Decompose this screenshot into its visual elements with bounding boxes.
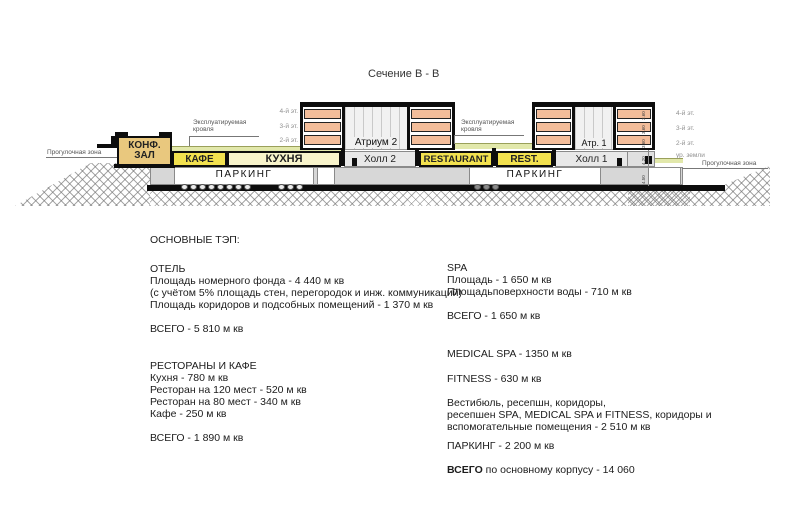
tep-line: вспомогательные помещения - 2 510 м кв xyxy=(447,421,712,433)
tep-total: ВСЕГО - 1 650 м кв xyxy=(447,310,712,322)
dim-4-50: 4.50 xyxy=(641,167,646,184)
floor-slab xyxy=(536,109,571,119)
floor-label-2: 2-й эт. xyxy=(258,137,298,144)
ground-hatch-left xyxy=(15,163,150,206)
tower-left-wing xyxy=(532,107,575,150)
car-dot xyxy=(296,184,303,190)
floor-slab xyxy=(411,135,451,145)
roof-leader-left-h xyxy=(189,136,259,137)
tep-grand-total-bold: ВСЕГО xyxy=(447,464,483,476)
tep-line: Ресторан на 120 мест - 520 м кв xyxy=(150,384,462,396)
tep-line: Площадь - 1 650 м кв xyxy=(447,274,712,286)
hall2-label: Холл 2 xyxy=(364,154,396,165)
roof-callout-right: Эксплуатируемая кровля xyxy=(461,119,519,133)
tep-grand-total-rest: по основному корпусу - 14 060 xyxy=(483,464,635,476)
floor-label-3-right: 3-й эт. xyxy=(676,125,694,132)
tep-line: Кафе - 250 м кв xyxy=(150,408,462,420)
restaurant-label: RESTAURANT xyxy=(424,154,489,165)
tower-atrium-1: Атр. 1 xyxy=(532,102,655,150)
car-dot xyxy=(492,184,499,190)
parking-cars-row xyxy=(278,177,305,195)
tep-parking: ПАРКИНГ - 2 200 м кв xyxy=(447,440,712,452)
car-dot xyxy=(483,184,490,190)
car-dot xyxy=(278,184,285,190)
cafe-label: КАФЕ xyxy=(185,154,213,165)
parapet-right xyxy=(159,132,172,138)
tep-section-title: ОТЕЛЬ xyxy=(150,263,462,275)
dim-3-60-a: 3.60 xyxy=(641,106,646,120)
architectural-section-sheet: Сечение В - В ПАРКИНГ ПАРКИНГ Прогулочна… xyxy=(0,0,800,505)
dim-3-60-c: 3.60 xyxy=(641,134,646,148)
car-dot xyxy=(235,184,242,190)
roof-leader-left-v xyxy=(189,136,190,146)
car-dot xyxy=(199,184,206,190)
car-dot xyxy=(208,184,215,190)
tep-misc-block: Вестибюль, ресепшн, коридоры, ресепшен S… xyxy=(447,397,712,433)
car-dot xyxy=(181,184,188,190)
parking-level-band: ПАРКИНГ ПАРКИНГ xyxy=(150,167,683,185)
cafe-room: КАФЕ xyxy=(172,151,227,167)
tep-grand-total: ВСЕГО по основному корпусу - 14 060 xyxy=(447,464,712,476)
kitchen-room: КУХНЯ xyxy=(227,151,341,167)
roof-leader-right-h xyxy=(454,135,524,136)
car-dot xyxy=(244,184,251,190)
parapet-left xyxy=(115,132,128,138)
parking-ramp xyxy=(317,168,335,184)
tep-line: Вестибюль, ресепшн, коридоры, xyxy=(447,397,712,409)
floor-slab xyxy=(411,122,451,132)
parking-hall-right: ПАРКИНГ xyxy=(469,168,601,184)
tep-left-column: ОСНОВНЫЕ ТЭП: ОТЕЛЬ Площадь номерного фо… xyxy=(150,234,462,444)
hall1-label: Холл 1 xyxy=(576,154,608,165)
parking-hall-left: ПАРКИНГ xyxy=(174,168,314,184)
floor-label-4-right: 4-й эт. xyxy=(676,110,694,117)
car-dot xyxy=(217,184,224,190)
atrium-2-void: Атриум 2 xyxy=(345,107,407,150)
tep-section-title: SPA xyxy=(447,262,712,274)
tep-line: Площадьповерхности воды - 710 м кв xyxy=(447,286,712,298)
column-post xyxy=(552,148,556,166)
tep-medical-spa: MEDICAL SPA - 1350 м кв xyxy=(447,348,712,360)
tep-line: Ресторан на 80 мест - 340 м кв xyxy=(150,396,462,408)
car-dot xyxy=(190,184,197,190)
parking-cars-row xyxy=(181,177,253,195)
car-dot xyxy=(474,184,481,190)
ground-level-label: ур. земли xyxy=(676,152,705,159)
tower-right-wing xyxy=(407,107,455,150)
drawing-title: Сечение В - В xyxy=(368,68,439,80)
car-dot xyxy=(226,184,233,190)
entry-mark xyxy=(352,158,357,166)
tep-fitness: FITNESS - 630 м кв xyxy=(447,373,712,385)
tep-header: ОСНОВНЫЕ ТЭП: xyxy=(150,234,462,246)
parking-cars-row xyxy=(474,177,501,195)
parking-pocket-right xyxy=(648,168,681,184)
conference-hall-room: КОНФ. ЗАЛ xyxy=(117,136,172,166)
walkway-left-label: Прогулочная зона xyxy=(47,149,101,156)
entry-mark xyxy=(617,158,622,166)
floor-slab xyxy=(411,109,451,119)
rest-room: REST. xyxy=(496,151,553,167)
tep-line: Площадь номерного фонда - 4 440 м кв xyxy=(150,275,462,287)
tower-right-wing xyxy=(613,107,655,150)
floor-label-3: 3-й эт. xyxy=(258,123,298,130)
tep-line: ресепшен SPA, MEDICAL SPA и FITNESS, кор… xyxy=(447,409,712,421)
tep-line: Площадь коридоров и подсобных помещений … xyxy=(150,299,462,311)
tep-right-column: SPA Площадь - 1 650 м кв Площадьповерхно… xyxy=(447,262,712,476)
atrium-1-void: Атр. 1 xyxy=(575,107,613,150)
floor-slab xyxy=(304,109,341,119)
atrium-2-label: Атриум 2 xyxy=(353,137,399,148)
tep-line: (с учётом 5% площадь стен, перегородок и… xyxy=(150,287,462,299)
floor-label-2-right: 2-й эт. xyxy=(676,140,694,147)
tep-section-hotel: ОТЕЛЬ Площадь номерного фонда - 4 440 м … xyxy=(150,263,462,335)
tep-total: ВСЕГО - 1 890 м кв xyxy=(150,432,462,444)
column-post xyxy=(415,148,419,166)
floor-slab xyxy=(304,135,341,145)
restaurant-room: RESTAURANT xyxy=(419,151,493,167)
tep-total: ВСЕГО - 5 810 м кв xyxy=(150,323,462,335)
dimension-line xyxy=(648,150,649,186)
floor-label-4: 4-й эт. xyxy=(258,108,298,115)
roof-callout-left: Эксплуатируемая кровля xyxy=(193,119,251,133)
floor-slab xyxy=(304,122,341,132)
floor-slab xyxy=(536,122,571,132)
conference-hall-base xyxy=(114,164,175,168)
dim-3-60-b: 3.60 xyxy=(641,120,646,134)
tep-section-title: РЕСТОРАНЫ И КАФЕ xyxy=(150,360,462,372)
tower-atrium-2: Атриум 2 xyxy=(300,102,455,150)
tep-section-restaurants: РЕСТОРАНЫ И КАФЕ Кухня - 780 м кв Рестор… xyxy=(150,360,462,444)
rest-label: REST. xyxy=(510,154,538,165)
tep-line: Кухня - 780 м кв xyxy=(150,372,462,384)
conference-hall-label-2: ЗАЛ xyxy=(134,151,155,161)
atrium-1-label: Атр. 1 xyxy=(580,138,609,148)
tower-left-wing xyxy=(300,107,345,150)
column-post xyxy=(492,148,496,166)
floor-slab xyxy=(536,135,571,145)
dim-4-20: 4.20 xyxy=(641,149,646,165)
kitchen-label: КУХНЯ xyxy=(265,153,302,165)
car-dot xyxy=(287,184,294,190)
walkway-right-label: Прогулочная зона xyxy=(702,160,756,167)
roof-leader-right-v xyxy=(454,135,455,144)
walkway-right-line xyxy=(682,168,768,169)
